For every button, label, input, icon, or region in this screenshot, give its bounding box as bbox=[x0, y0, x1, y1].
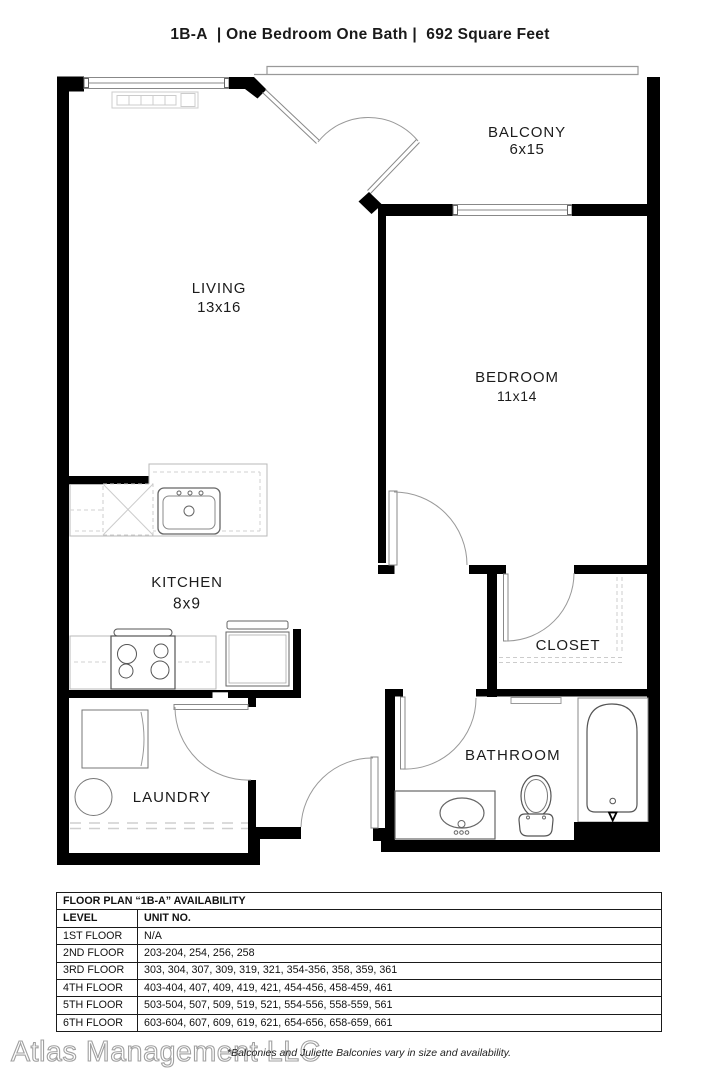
svg-text:8x9: 8x9 bbox=[173, 596, 201, 613]
svg-text:LAUNDRY: LAUNDRY bbox=[133, 789, 211, 806]
svg-text:6x15: 6x15 bbox=[510, 141, 545, 158]
svg-text:KITCHEN: KITCHEN bbox=[151, 574, 222, 591]
svg-text:BALCONY: BALCONY bbox=[488, 124, 566, 141]
svg-text:BATHROOM: BATHROOM bbox=[465, 747, 561, 764]
svg-text:BEDROOM: BEDROOM bbox=[475, 369, 559, 386]
svg-text:LIVING: LIVING bbox=[192, 280, 247, 297]
svg-text:11x14: 11x14 bbox=[497, 388, 537, 404]
svg-text:CLOSET: CLOSET bbox=[536, 637, 601, 654]
svg-text:13x16: 13x16 bbox=[197, 299, 241, 316]
